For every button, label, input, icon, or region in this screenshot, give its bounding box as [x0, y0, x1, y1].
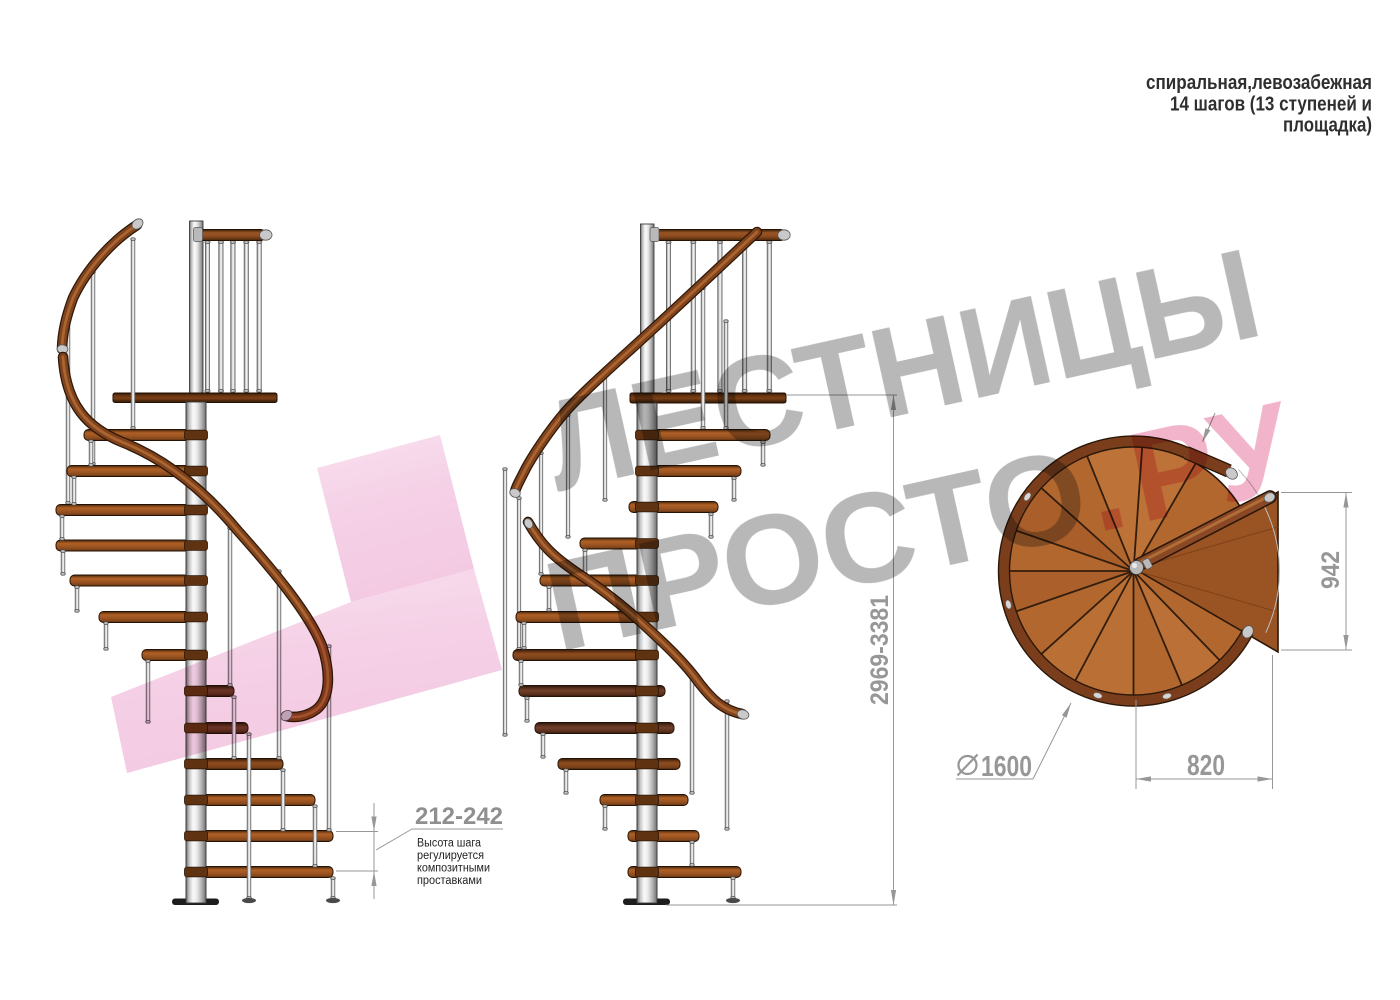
svg-text:820: 820	[1187, 750, 1225, 782]
svg-text:1600: 1600	[981, 751, 1032, 783]
svg-text:площадка): площадка)	[1283, 114, 1372, 137]
svg-text:проставками: проставками	[417, 875, 482, 887]
svg-text:942: 942	[1317, 551, 1345, 589]
svg-text:212-242: 212-242	[415, 803, 503, 830]
svg-text:регулируется: регулируется	[417, 850, 484, 862]
svg-text:14 шагов (13 ступеней и: 14 шагов (13 ступеней и	[1170, 93, 1372, 116]
svg-text:Высота шага: Высота шага	[417, 838, 482, 850]
svg-text:композитными: композитными	[417, 863, 490, 875]
svg-text:спиральная,левозабежная: спиральная,левозабежная	[1146, 71, 1372, 94]
